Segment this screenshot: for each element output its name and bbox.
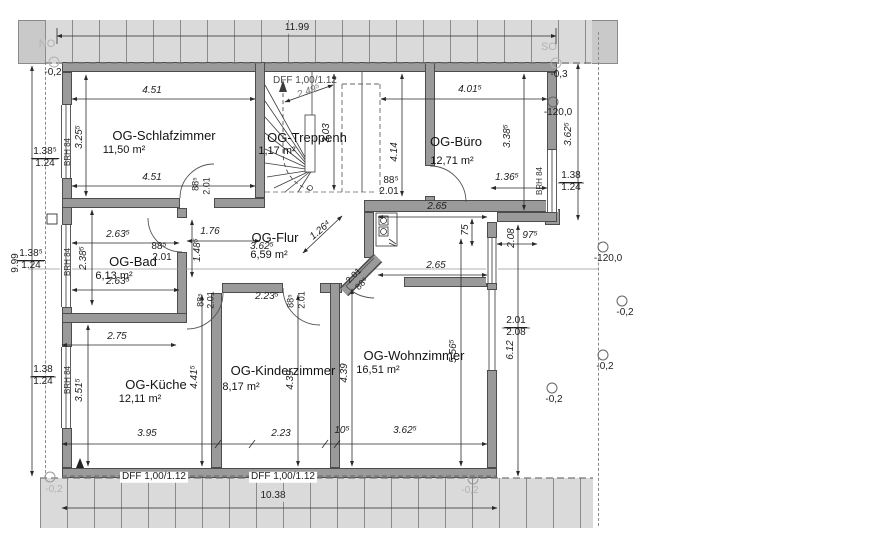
level-right-mid: -120,0 bbox=[594, 254, 622, 265]
dim-kinder-height: 4.39 bbox=[286, 370, 297, 389]
dim-schlaf-height: 3.25⁵ bbox=[75, 125, 86, 149]
room-area-kinderzimmer: 8,17 m² bbox=[222, 382, 259, 394]
dim-wall-thickness: 10⁵ bbox=[334, 426, 349, 437]
dim-dff-roof-top: DFF 1,00/1.12 bbox=[273, 76, 337, 87]
room-area-buero: 12,71 m² bbox=[430, 156, 473, 168]
level-nw: -0,2 bbox=[44, 68, 61, 79]
dim-dff-bottom-2: DFF 1,00/1.12 bbox=[249, 472, 317, 483]
orientation-nw: NO bbox=[39, 39, 56, 51]
dim-buero-door-height: 2.01 bbox=[379, 187, 398, 198]
dim-kinder-door: 2.23⁵ bbox=[255, 292, 279, 303]
dim-right-outside: 3.62⁵ bbox=[564, 122, 575, 146]
dim-buero-entry: 4.14 bbox=[390, 142, 401, 161]
brh-label-buero: BRH 84 bbox=[536, 167, 544, 195]
dim-wohn-inner: 5.56⁵ bbox=[449, 339, 460, 363]
level-ne: -0,3 bbox=[550, 70, 567, 81]
brh-label-schlafzimmer: BRH 84 bbox=[64, 138, 72, 166]
window-label-bad: 1.38⁵1.24 bbox=[17, 249, 45, 271]
dim-dff-bottom-1: DFF 1,00/1.12 bbox=[120, 472, 188, 483]
dim-nook-vertical: 2.08 bbox=[507, 228, 518, 247]
level-right-1: -0,2 bbox=[616, 308, 633, 319]
brh-label-bad: BRH 84 bbox=[64, 248, 72, 276]
dim-nook-width-1: 2.65 bbox=[427, 202, 446, 213]
dim-kueche-height: 3.51⁵ bbox=[75, 378, 86, 402]
survey-point-icon bbox=[76, 458, 84, 468]
dim-total-bottom: 10.38 bbox=[257, 491, 288, 502]
level-se-bot: -0,2 bbox=[461, 486, 478, 497]
window-label-schlafzimmer: 1.38⁵1.24 bbox=[31, 147, 59, 169]
floor-plan: NO SO 11.99 10.38 9.99 -0,2 -0,3 -120,0 … bbox=[0, 0, 883, 539]
window-nook bbox=[486, 238, 498, 283]
room-name-buero: OG-Büro bbox=[430, 135, 482, 149]
dim-kinder-door-height: 2.01 bbox=[297, 291, 306, 309]
dim-bad-door-width: 88⁵ bbox=[151, 242, 166, 253]
dim-buero-height: 3.38⁵ bbox=[503, 124, 514, 148]
dim-kueche-top: 2.75 bbox=[107, 332, 126, 343]
dim-buero-top: 4.01⁵ bbox=[458, 85, 482, 96]
room-name-kinderzimmer: OG-Kinderzimmer bbox=[231, 364, 336, 378]
dim-bad-height: 2.38⁵ bbox=[79, 246, 90, 270]
room-area-schlafzimmer: 11,50 m² bbox=[103, 145, 146, 157]
brh-label-kueche: BRH 84 bbox=[64, 366, 72, 394]
dim-nook-width-2: 2.65 bbox=[426, 261, 445, 272]
dff-projection bbox=[342, 84, 380, 192]
level-right-3: -0,2 bbox=[545, 395, 562, 406]
dim-wohn-right: 6.12 bbox=[506, 340, 517, 359]
window-buero bbox=[546, 150, 558, 212]
dim-bad-door-height: 2.01 bbox=[152, 253, 171, 264]
dim-bad-top: 2.63⁵ bbox=[106, 230, 130, 241]
dim-buero-door-width: 88⁵ bbox=[383, 176, 398, 187]
dim-flur-width: 1.76 bbox=[200, 227, 219, 238]
room-area-wohnzimmer: 16,51 m² bbox=[356, 365, 399, 377]
dim-nook-small: 97⁵ bbox=[522, 231, 537, 242]
dim-flur-hidden: 3.62⁵ bbox=[250, 242, 274, 253]
dim-bad-bottom: 2.63⁵ bbox=[106, 277, 130, 288]
window-wohnzimmer bbox=[486, 290, 498, 370]
dim-kueche-dff: 3.95 bbox=[137, 429, 156, 440]
dim-schlaf-door-height: 2.01 bbox=[202, 177, 211, 195]
dim-schlaf-bottom: 4.51 bbox=[142, 173, 161, 184]
dim-kinder-dff: 2.23 bbox=[271, 429, 290, 440]
dim-stair-height: 3.03 bbox=[322, 123, 333, 142]
room-area-kueche: 12,11 m² bbox=[119, 394, 162, 406]
orientation-se: SO bbox=[541, 42, 557, 54]
room-name-treppenhaus: OG-Treppenh bbox=[267, 131, 347, 145]
dim-kueche-door-height: 2.01 bbox=[206, 291, 215, 309]
dim-schlaf-door-width: 88⁵ bbox=[191, 177, 200, 191]
window-label-buero: 1.381.24 bbox=[559, 171, 582, 193]
dim-total-top: 11.99 bbox=[282, 23, 312, 34]
dim-schlaf-top: 4.51 bbox=[142, 86, 161, 97]
duct-shaft bbox=[376, 213, 397, 246]
dim-wohn-height: 4.39 bbox=[340, 363, 351, 382]
dim-buero-window: 1.36⁵ bbox=[495, 173, 519, 184]
dim-nook-depth: 75 bbox=[461, 224, 472, 235]
room-name-schlafzimmer: OG-Schlafzimmer bbox=[112, 129, 215, 143]
window-label-wohnzimmer: 2.012.08 bbox=[504, 316, 527, 338]
dim-kinder-door-width: 88⁵ bbox=[286, 294, 295, 308]
level-right-2: -0,2 bbox=[596, 362, 613, 373]
window-label-kueche: 1.381.24 bbox=[31, 365, 54, 387]
room-name-kueche: OG-Küche bbox=[125, 378, 186, 392]
level-sw: -0,2 bbox=[45, 485, 62, 496]
room-area-treppenhaus: 1,17 m² bbox=[258, 146, 295, 158]
wall-vent-symbol bbox=[47, 214, 57, 224]
level-right-upper: -120,0 bbox=[544, 108, 572, 119]
dim-flur-vertical: 1.48⁵ bbox=[193, 238, 204, 262]
dim-wohn-bottom: 3.62⁵ bbox=[393, 426, 417, 437]
room-name-bad: OG-Bad bbox=[109, 255, 157, 269]
dim-kueche-inner: 4.41⁵ bbox=[190, 365, 201, 389]
